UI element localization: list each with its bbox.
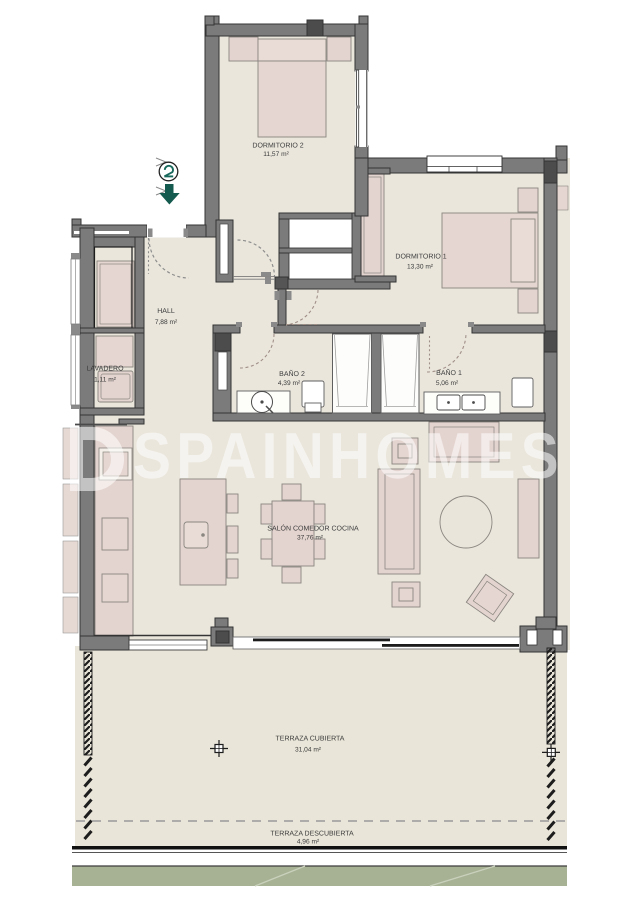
svg-text:4,96 m²: 4,96 m² xyxy=(297,839,320,846)
svg-text:37,76 m²: 37,76 m² xyxy=(297,535,324,542)
svg-text:SPAINHOMES: SPAINHOMES xyxy=(133,419,564,492)
svg-text:BAÑO 2: BAÑO 2 xyxy=(279,369,305,378)
svg-text:SALÓN COMEDOR COCINA: SALÓN COMEDOR COCINA xyxy=(267,524,359,533)
svg-text:DORMITORIO 2: DORMITORIO 2 xyxy=(252,143,303,150)
svg-text:13,30 m²: 13,30 m² xyxy=(407,264,434,271)
svg-text:11,57 m²: 11,57 m² xyxy=(263,151,289,158)
svg-text:LAVADERO: LAVADERO xyxy=(86,366,124,373)
svg-text:TERRAZA DESCUBIERTA: TERRAZA DESCUBIERTA xyxy=(270,831,354,838)
svg-text:5,06 m²: 5,06 m² xyxy=(436,380,459,387)
svg-text:7,88 m²: 7,88 m² xyxy=(155,319,178,326)
svg-text:BAÑO 1: BAÑO 1 xyxy=(436,368,462,377)
svg-text:4,39 m²: 4,39 m² xyxy=(278,380,301,387)
svg-text:1,11 m²: 1,11 m² xyxy=(94,377,117,384)
svg-text:31,04 m²: 31,04 m² xyxy=(295,747,322,754)
svg-text:HALL: HALL xyxy=(157,308,175,315)
svg-text:TERRAZA CUBIERTA: TERRAZA CUBIERTA xyxy=(276,736,345,743)
svg-text:DORMITORIO 1: DORMITORIO 1 xyxy=(395,254,446,261)
